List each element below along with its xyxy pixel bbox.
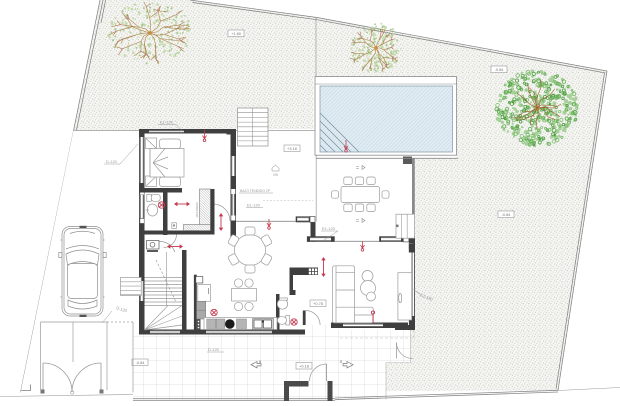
svg-text:E1-120: E1-120 [160,120,174,125]
svg-text:-0.84: -0.84 [495,67,505,72]
svg-text:+3.18: +3.18 [287,146,297,151]
svg-text:1%: 1% [273,173,278,177]
svg-text:-0.84: -0.84 [136,360,146,365]
svg-text:+0.78: +0.78 [313,301,323,306]
svg-text:E1-120: E1-120 [247,203,261,208]
svg-text:D-120: D-120 [208,347,220,352]
svg-text:-0.84: -0.84 [502,212,512,217]
svg-text:+0.18: +0.18 [299,364,309,369]
svg-text:BAJO TENDIDO 2P: BAJO TENDIDO 2P [240,189,271,193]
svg-text:VESTIDOR: VESTIDOR [195,202,199,218]
svg-text:E1-120: E1-120 [322,226,336,231]
svg-text:D-120: D-120 [106,159,118,164]
svg-text:+1.80: +1.80 [231,31,242,36]
